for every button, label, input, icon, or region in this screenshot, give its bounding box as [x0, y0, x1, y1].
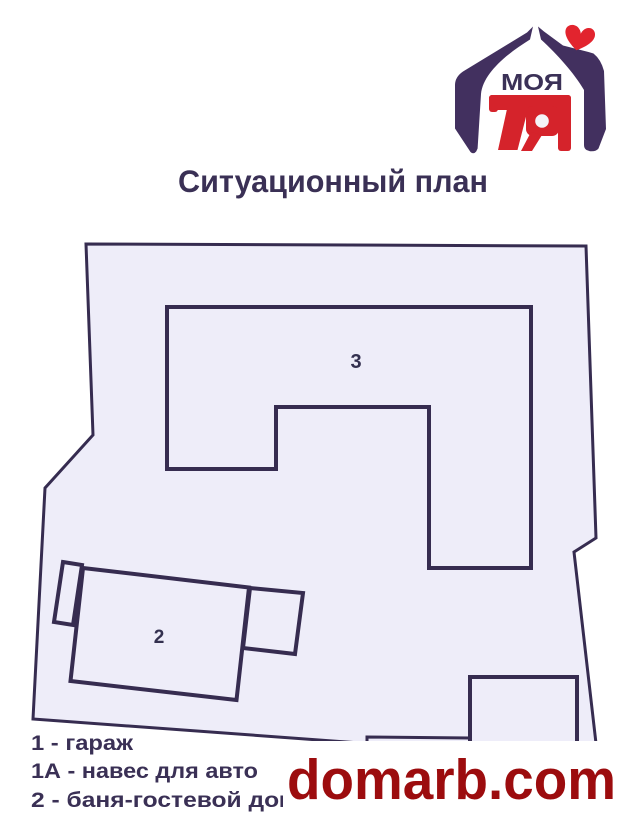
svg-text:1 - гараж: 1 - гараж [31, 732, 134, 755]
svg-text:МОЯ: МОЯ [501, 69, 563, 95]
svg-text:1А - навес для авто: 1А - навес для авто [31, 760, 258, 783]
svg-text:Ситуационный план: Ситуационный план [178, 163, 488, 199]
svg-text:domarb.com: domarb.com [287, 748, 616, 812]
svg-text:2 - баня-гостевой дом: 2 - баня-гостевой дом [31, 789, 297, 812]
svg-text:2: 2 [154, 627, 165, 648]
svg-text:3: 3 [350, 351, 361, 373]
